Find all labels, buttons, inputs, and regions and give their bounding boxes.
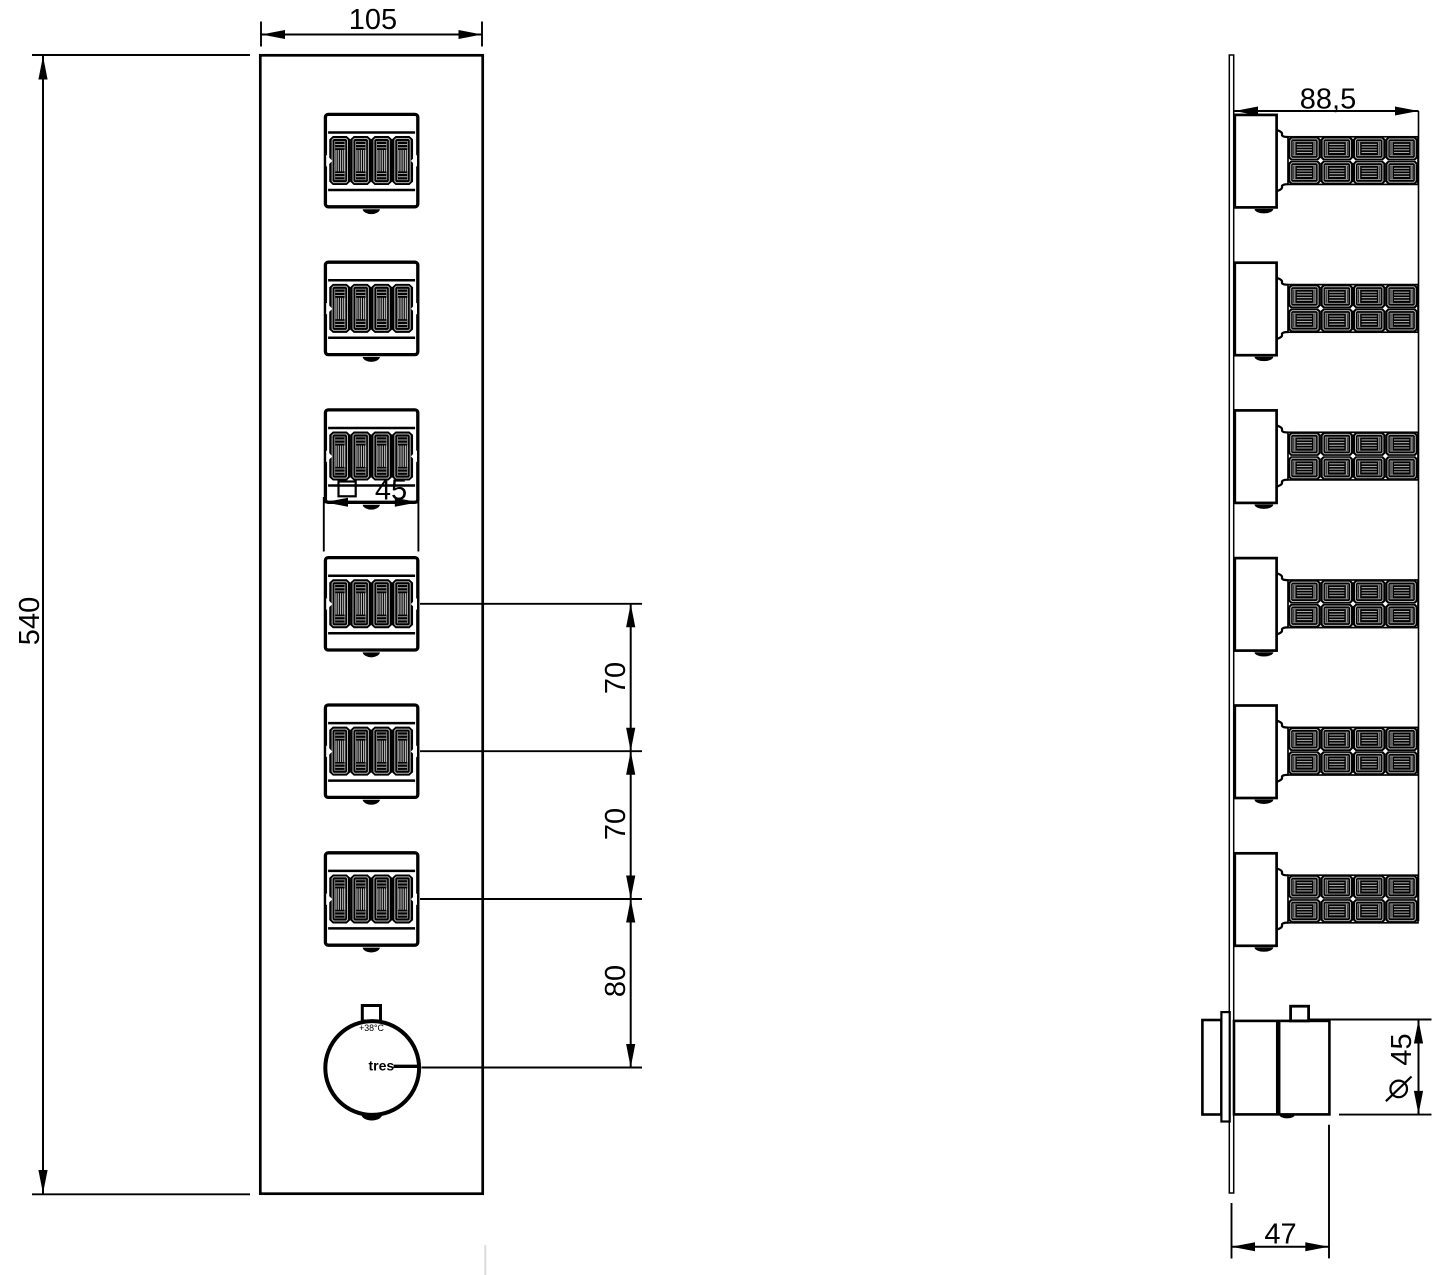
svg-text:+38°C: +38°C [359, 1023, 384, 1033]
svg-text:540: 540 [14, 597, 46, 645]
svg-text:105: 105 [349, 4, 397, 36]
svg-text:tres: tres [369, 1058, 395, 1074]
svg-text:88,5: 88,5 [1300, 84, 1356, 116]
svg-text:70: 70 [600, 808, 632, 840]
svg-text:45: 45 [1386, 1033, 1418, 1065]
svg-text:47: 47 [1264, 1219, 1296, 1251]
svg-text:80: 80 [600, 965, 632, 997]
svg-text:70: 70 [600, 662, 632, 694]
